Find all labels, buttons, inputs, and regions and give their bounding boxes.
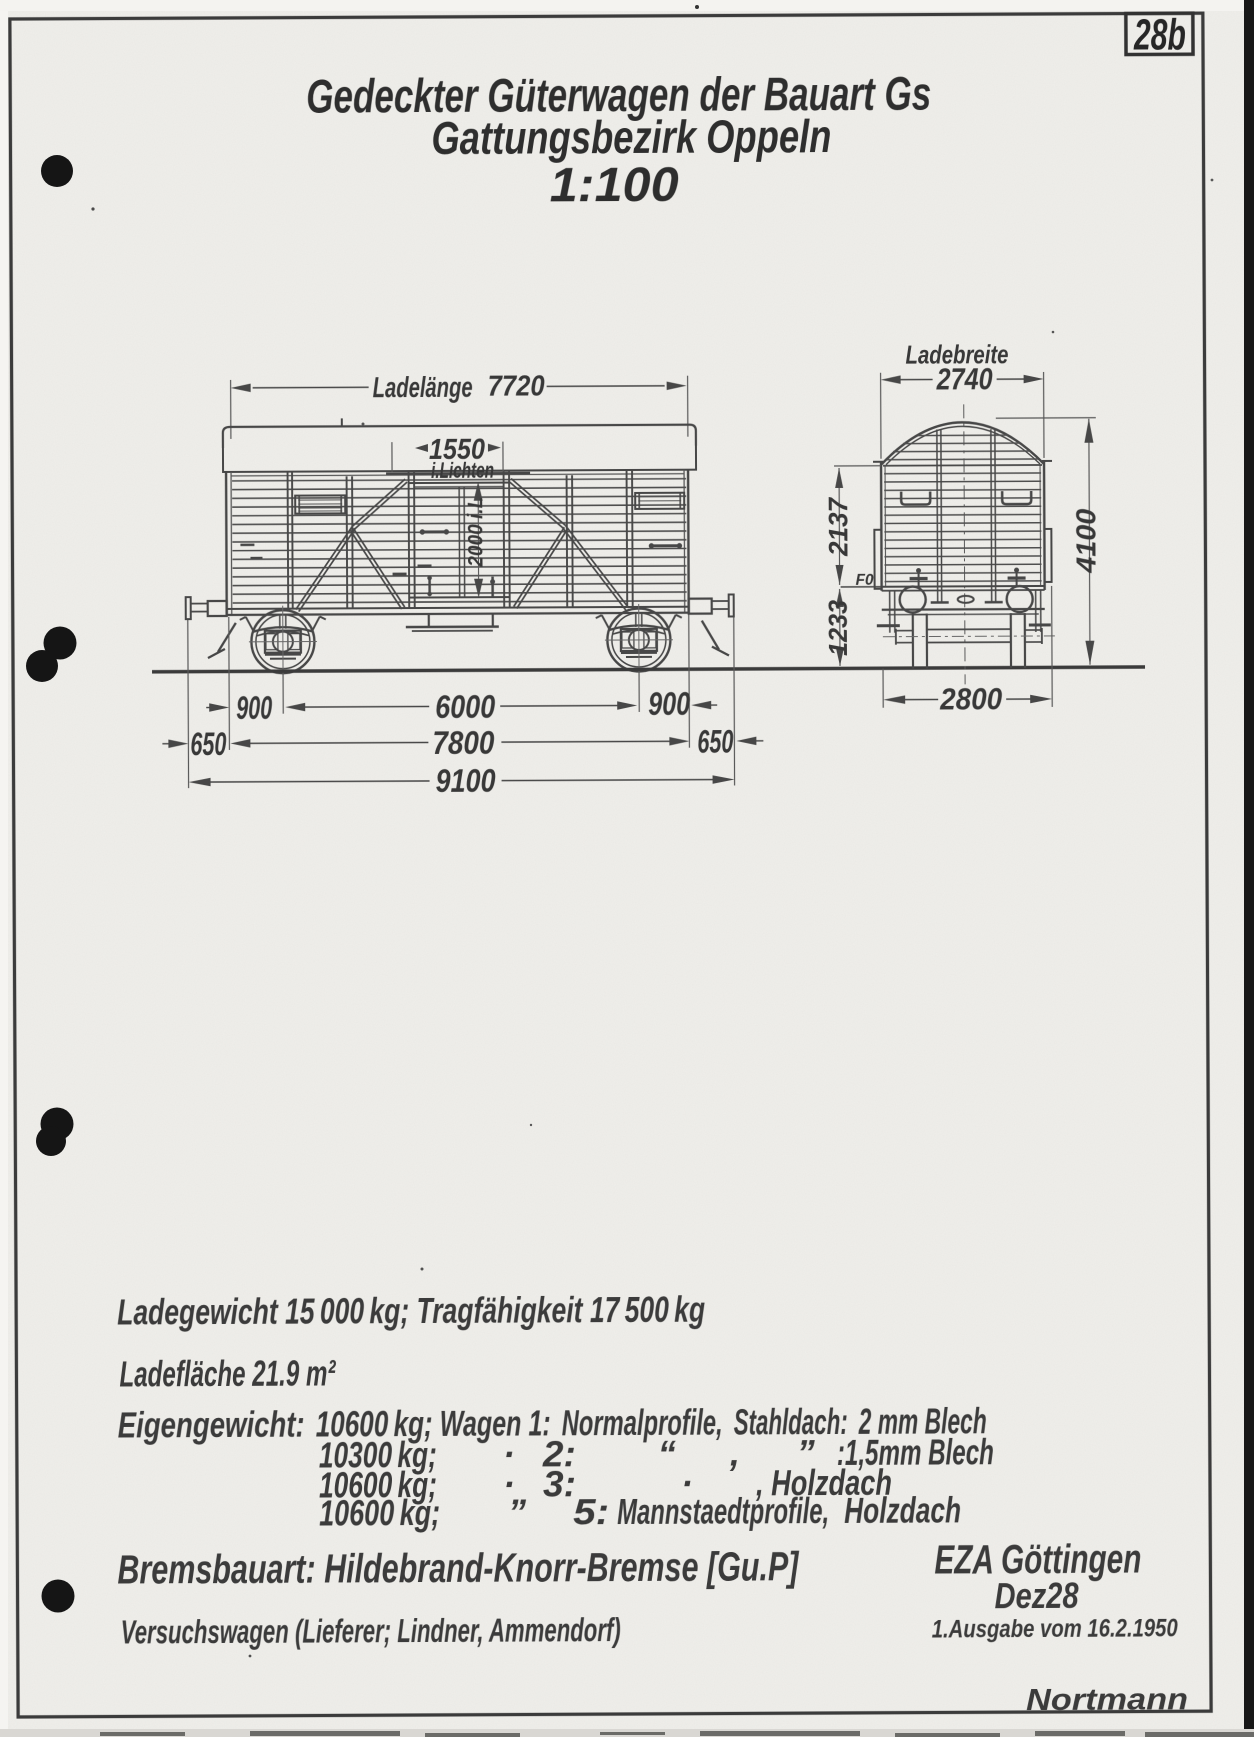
svg-text:Versuchswagen (Lieferer; Lindn: Versuchswagen (Lieferer; Lindner, Ammend… [121, 1611, 621, 1650]
svg-text:Mannstaedtprofile,: Mannstaedtprofile, [617, 1490, 829, 1532]
svg-text:900: 900 [648, 686, 690, 722]
svg-text:1:100: 1:100 [550, 159, 680, 213]
svg-text:Stahldach:: Stahldach: [734, 1401, 848, 1443]
svg-text:i.Lichten: i.Lichten [431, 458, 494, 483]
svg-text:1.Ausgabe vom 16.2.1950: 1.Ausgabe vom 16.2.1950 [932, 1614, 1178, 1643]
svg-text:28b: 28b [1133, 10, 1186, 59]
svg-text:900: 900 [236, 690, 272, 726]
svg-text:Ladegewicht 15 000 kg; Tragfäh: Ladegewicht 15 000 kg; Tragfähigkeit 17 … [117, 1289, 705, 1333]
svg-text:Dez28: Dez28 [994, 1575, 1078, 1616]
svg-text:,: , [729, 1432, 740, 1473]
svg-text:Ladefläche 21.9 m²: Ladefläche 21.9 m² [119, 1352, 336, 1394]
svg-text:2000 i.L: 2000 i.L [464, 497, 487, 568]
svg-text:“: “ [658, 1433, 676, 1474]
svg-text:2800: 2800 [939, 681, 1002, 716]
svg-text:6000: 6000 [435, 689, 495, 725]
svg-text:9100: 9100 [435, 763, 495, 799]
svg-text:2137: 2137 [823, 496, 853, 557]
svg-text:Ladelänge: Ladelänge [373, 372, 473, 404]
svg-text:1233: 1233 [823, 599, 853, 656]
svg-text:3:: 3: [543, 1463, 576, 1504]
svg-text:7800: 7800 [432, 725, 494, 761]
svg-text:650: 650 [190, 726, 226, 762]
svg-text:Nortmann: Nortmann [1026, 1681, 1188, 1717]
svg-text:”: ” [508, 1492, 526, 1533]
svg-text:Normalprofile,: Normalprofile, [562, 1402, 723, 1444]
svg-text:F0: F0 [856, 572, 874, 589]
svg-text:4100: 4100 [1070, 508, 1101, 574]
svg-text:5:: 5: [573, 1491, 609, 1532]
svg-text:Eigengewicht:: Eigengewicht: [118, 1404, 305, 1446]
svg-text:10600 kg;: 10600 kg; [319, 1492, 440, 1534]
svg-text:Bremsbauart: Hildebrand-Knorr-: Bremsbauart: Hildebrand-Knorr-Bremse [Gu… [117, 1543, 799, 1592]
svg-text:2740: 2740 [936, 361, 993, 396]
svg-text:7720: 7720 [488, 370, 545, 402]
svg-text:650: 650 [697, 723, 733, 759]
svg-text:Wagen 1:: Wagen 1: [440, 1402, 551, 1444]
svg-text:Holzdach: Holzdach [844, 1489, 961, 1531]
svg-text:Gattungsbezirk Oppeln: Gattungsbezirk Oppeln [431, 110, 831, 164]
